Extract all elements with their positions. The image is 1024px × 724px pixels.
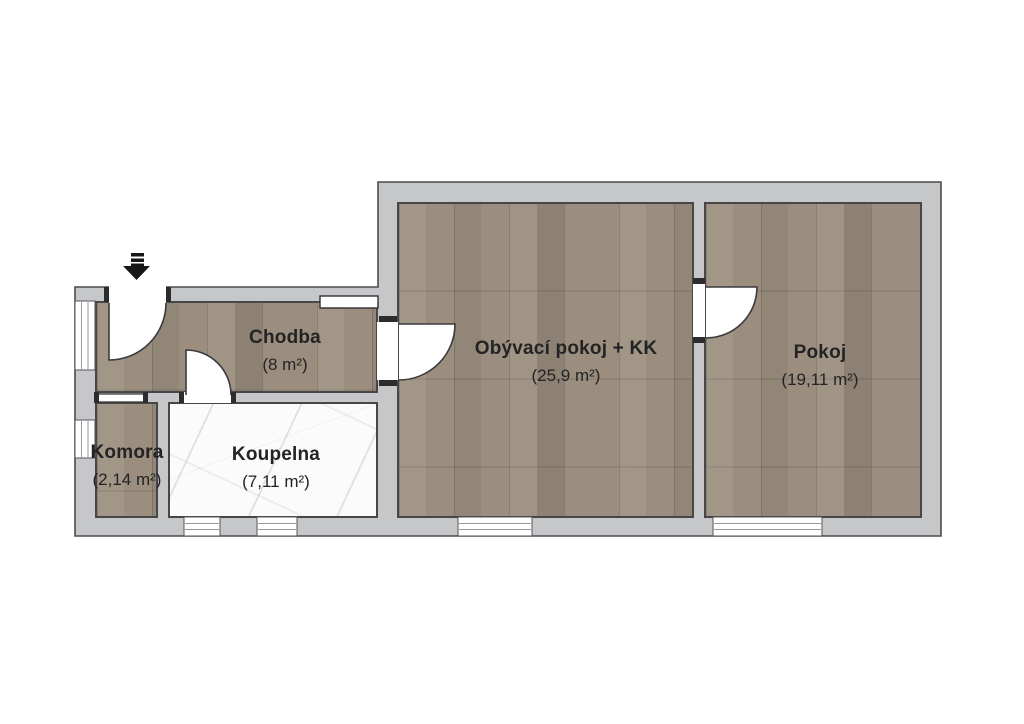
room-area: (25,9 m²) [475, 367, 658, 384]
room-name: Obývací pokoj + KK [475, 339, 658, 358]
room-name: Koupelna [232, 445, 320, 464]
room-label-chodba: Chodba (8 m²) [249, 328, 321, 373]
room-label-komora: Komora (2,14 m²) [91, 443, 164, 488]
room-label-pokoj: Pokoj (19,11 m²) [781, 343, 858, 388]
room-name: Pokoj [781, 343, 858, 362]
room-label-obyvaci-pokoj: Obývací pokoj + KK (25,9 m²) [475, 339, 658, 384]
room-area: (8 m²) [249, 356, 321, 373]
room-label-koupelna: Koupelna (7,11 m²) [232, 445, 320, 490]
room-area: (19,11 m²) [781, 371, 858, 388]
room-name: Chodba [249, 328, 321, 347]
room-area: (2,14 m²) [91, 471, 164, 488]
room-floor-chodba [95, 301, 378, 393]
room-area: (7,11 m²) [232, 473, 320, 490]
room-name: Komora [91, 443, 164, 462]
down-arrow-icon [123, 253, 150, 280]
floorplan-canvas: Chodba (8 m²) Komora (2,14 m²) Koupelna … [0, 0, 1024, 724]
